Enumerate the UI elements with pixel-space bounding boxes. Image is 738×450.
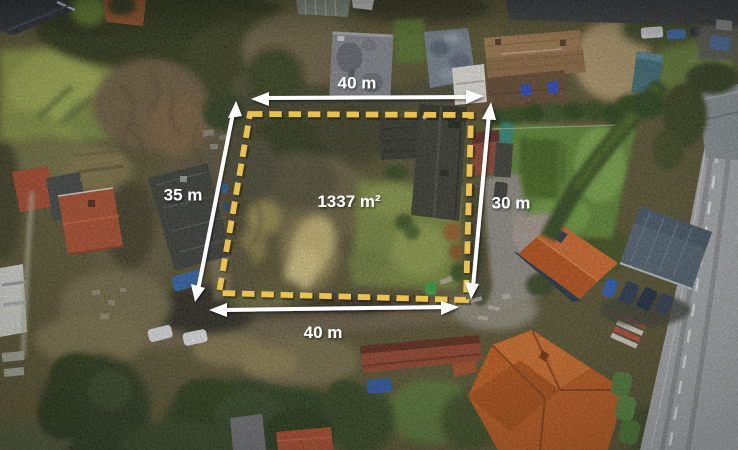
svg-text:40 m: 40 m bbox=[338, 74, 377, 93]
svg-text:1337 m²: 1337 m² bbox=[317, 192, 381, 211]
svg-text:30 m: 30 m bbox=[492, 194, 531, 213]
svg-text:40 m: 40 m bbox=[304, 323, 343, 342]
svg-text:35 m: 35 m bbox=[164, 186, 203, 205]
